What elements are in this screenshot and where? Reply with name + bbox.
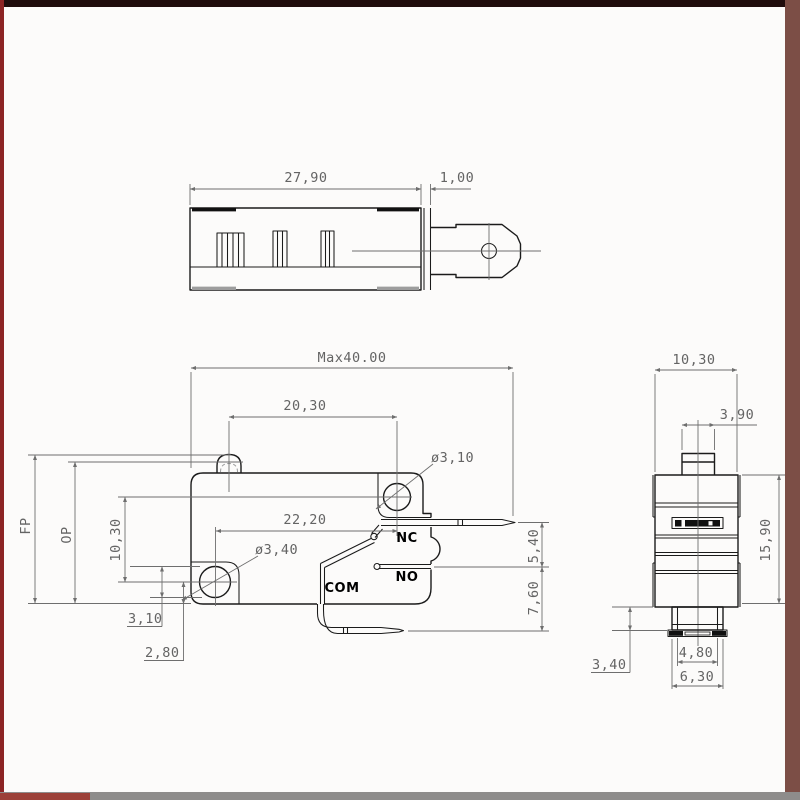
frame-left [0,0,4,800]
com-plate-left [669,631,683,636]
frame-right [785,0,800,800]
dim-label-operating-position: OP [59,526,75,543]
dim-label-side-terminal-inner-width: 4,80 [679,645,714,661]
frame-top [0,0,800,7]
dim-label-front-hole-center-to-bottom: 2,80 [145,645,180,661]
dim-label-nc-no-gap: 5,40 [526,529,542,564]
com-plate-right [712,631,726,636]
dim-label-top-body-length: 27,90 [284,170,327,186]
drawing-page: 27,90 1,00 NC NO COM [0,0,800,800]
blade-gap [682,520,686,527]
dim-label-front-top-hole-dia: ø3,10 [431,450,474,466]
dim-label-top-cap-width: 1,00 [440,170,475,186]
dim-label-side-terminal-outer-width: 6,30 [680,669,715,685]
dim-label-no-com-gap: 7,60 [526,581,542,616]
dim-label-front-hole-to-bottom: 3,10 [128,611,163,627]
dim-label-front-max-width: Max40.00 [317,350,386,366]
com-terminal-label: COM [324,581,359,596]
dim-label-front-hole-vspan: 10,30 [108,518,124,561]
dim-label-side-body-width: 10,30 [672,352,715,368]
frame-bottom [0,792,800,800]
blade-notch [709,521,713,525]
dim-label-front-terminal-span: 22,20 [283,512,326,528]
no-terminal-label: NO [396,570,419,585]
nc-terminal-label: NC [396,531,417,546]
dim-label-front-hole-span: 20,30 [283,398,326,414]
dim-label-free-position: FP [18,517,34,534]
frame-bottom-left-tint [0,793,90,800]
dim-label-side-terminal-step: 3,40 [592,657,627,673]
dim-label-front-bottom-hole-dia: ø3,40 [255,542,298,558]
dimension-drawing-svg: 27,90 1,00 NC NO COM [0,0,800,800]
dim-label-side-body-height: 15,90 [758,518,774,561]
dim-label-side-plunger-width: 3,90 [720,407,755,423]
